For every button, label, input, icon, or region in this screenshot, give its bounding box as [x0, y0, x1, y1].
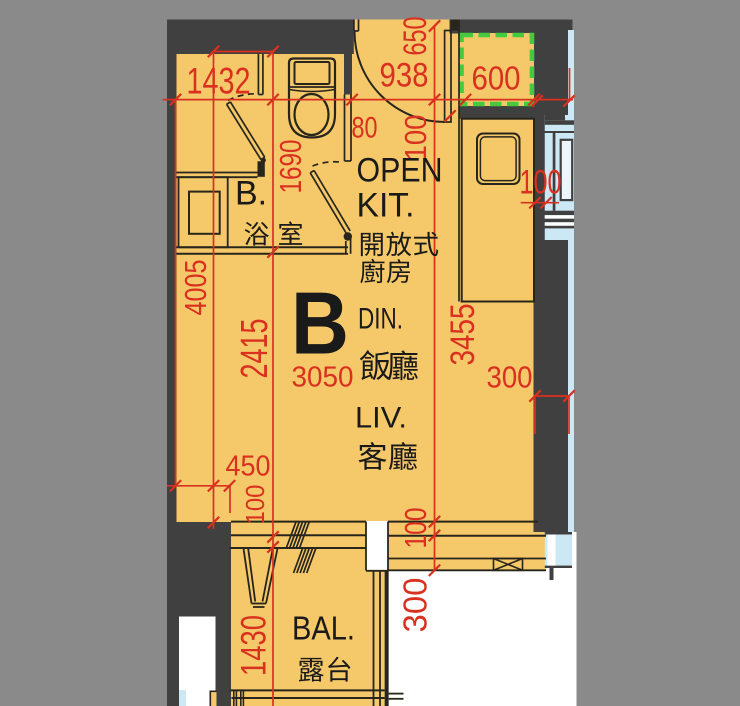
- svg-text:450: 450: [226, 451, 271, 483]
- svg-text:938: 938: [380, 57, 429, 95]
- svg-text:OPEN: OPEN: [357, 152, 443, 190]
- svg-text:600: 600: [472, 60, 521, 97]
- svg-text:300: 300: [487, 360, 533, 395]
- svg-text:1690: 1690: [273, 140, 308, 194]
- svg-text:100: 100: [520, 164, 562, 202]
- svg-text:1430: 1430: [235, 615, 274, 676]
- svg-text:80: 80: [352, 112, 378, 145]
- svg-text:4005: 4005: [178, 260, 213, 316]
- svg-text:650: 650: [397, 17, 433, 56]
- svg-text:100: 100: [240, 485, 270, 525]
- svg-text:BAL.: BAL.: [292, 610, 355, 647]
- svg-text:KIT.: KIT.: [357, 187, 415, 225]
- svg-text:B.: B.: [235, 175, 267, 213]
- svg-text:2415: 2415: [234, 319, 276, 379]
- svg-text:100: 100: [398, 508, 433, 549]
- svg-text:1432: 1432: [187, 61, 251, 102]
- svg-text:B: B: [291, 274, 349, 373]
- svg-text:LIV.: LIV.: [355, 402, 407, 435]
- svg-text:300: 300: [397, 578, 434, 633]
- svg-text:DIN.: DIN.: [358, 303, 403, 336]
- svg-text:3455: 3455: [444, 304, 482, 366]
